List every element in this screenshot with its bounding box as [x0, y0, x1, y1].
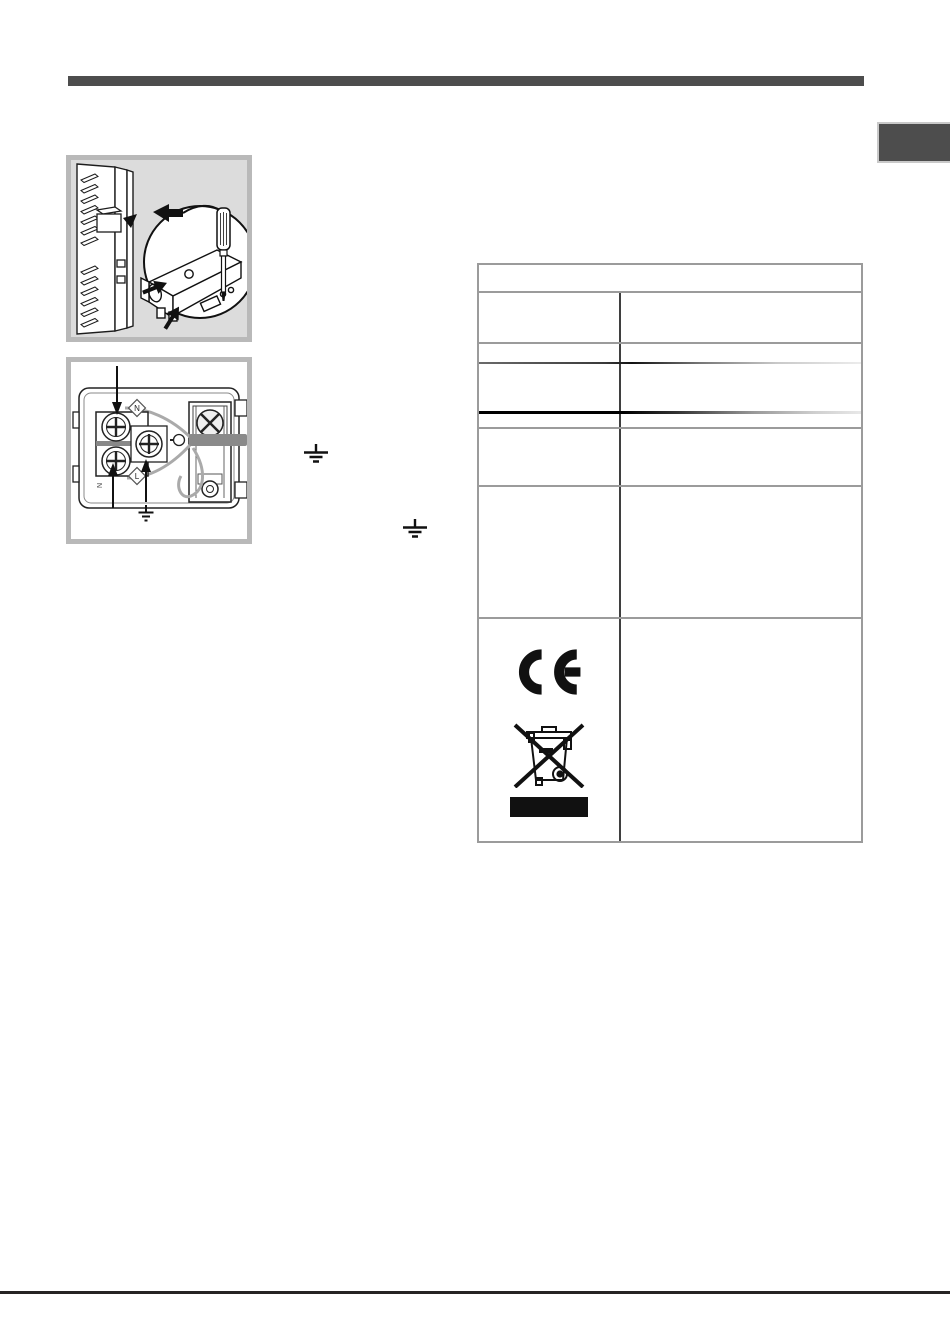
- terminal-board-figure: N L N: [66, 357, 252, 544]
- earth-symbol-icon: [402, 518, 428, 538]
- table-cell-right: [621, 487, 861, 617]
- table-row: [479, 344, 861, 364]
- table-cell-left: [479, 429, 621, 485]
- terminal-label-n: N: [134, 404, 140, 413]
- table-cell-right: [621, 429, 861, 485]
- table-row: [479, 364, 861, 414]
- weee-black-bar: [510, 797, 588, 817]
- footer-rule: [0, 1291, 950, 1294]
- table-cell-right: [621, 619, 861, 841]
- table-cell-right: [621, 364, 861, 414]
- table-row: [479, 414, 861, 429]
- compliance-symbols-cell: [479, 619, 621, 841]
- table-cell-left: [479, 293, 621, 342]
- terminal-label-l: L: [135, 472, 140, 481]
- supply-cable: [189, 434, 247, 446]
- table-cell-right: [621, 293, 861, 342]
- language-edge-tab: [877, 122, 950, 163]
- earth-symbol-icon: [303, 443, 329, 463]
- terminal-label-side-n: N: [97, 483, 104, 488]
- terminal-cover-illustration: [71, 160, 247, 337]
- specifications-table: [477, 263, 863, 843]
- table-header: [479, 265, 861, 293]
- table-row-compliance: [479, 619, 861, 841]
- table-cell-left: [479, 364, 621, 414]
- table-row: [479, 293, 861, 344]
- table-row: [479, 429, 861, 487]
- table-cell-left: [479, 487, 621, 617]
- table-cell-right: [621, 344, 861, 364]
- table-row: [479, 487, 861, 619]
- terminal-cover-figure: [66, 155, 252, 342]
- table-cell-left: [479, 414, 621, 427]
- table-cell-right: [621, 414, 861, 427]
- page-header-bar: [68, 76, 864, 86]
- ce-marking-icon: [512, 645, 586, 699]
- weee-crossed-bin-icon: [509, 708, 589, 788]
- manual-page: N L N: [0, 0, 950, 1344]
- table-cell-left: [479, 344, 621, 364]
- terminal-board-illustration: N L N: [71, 362, 247, 539]
